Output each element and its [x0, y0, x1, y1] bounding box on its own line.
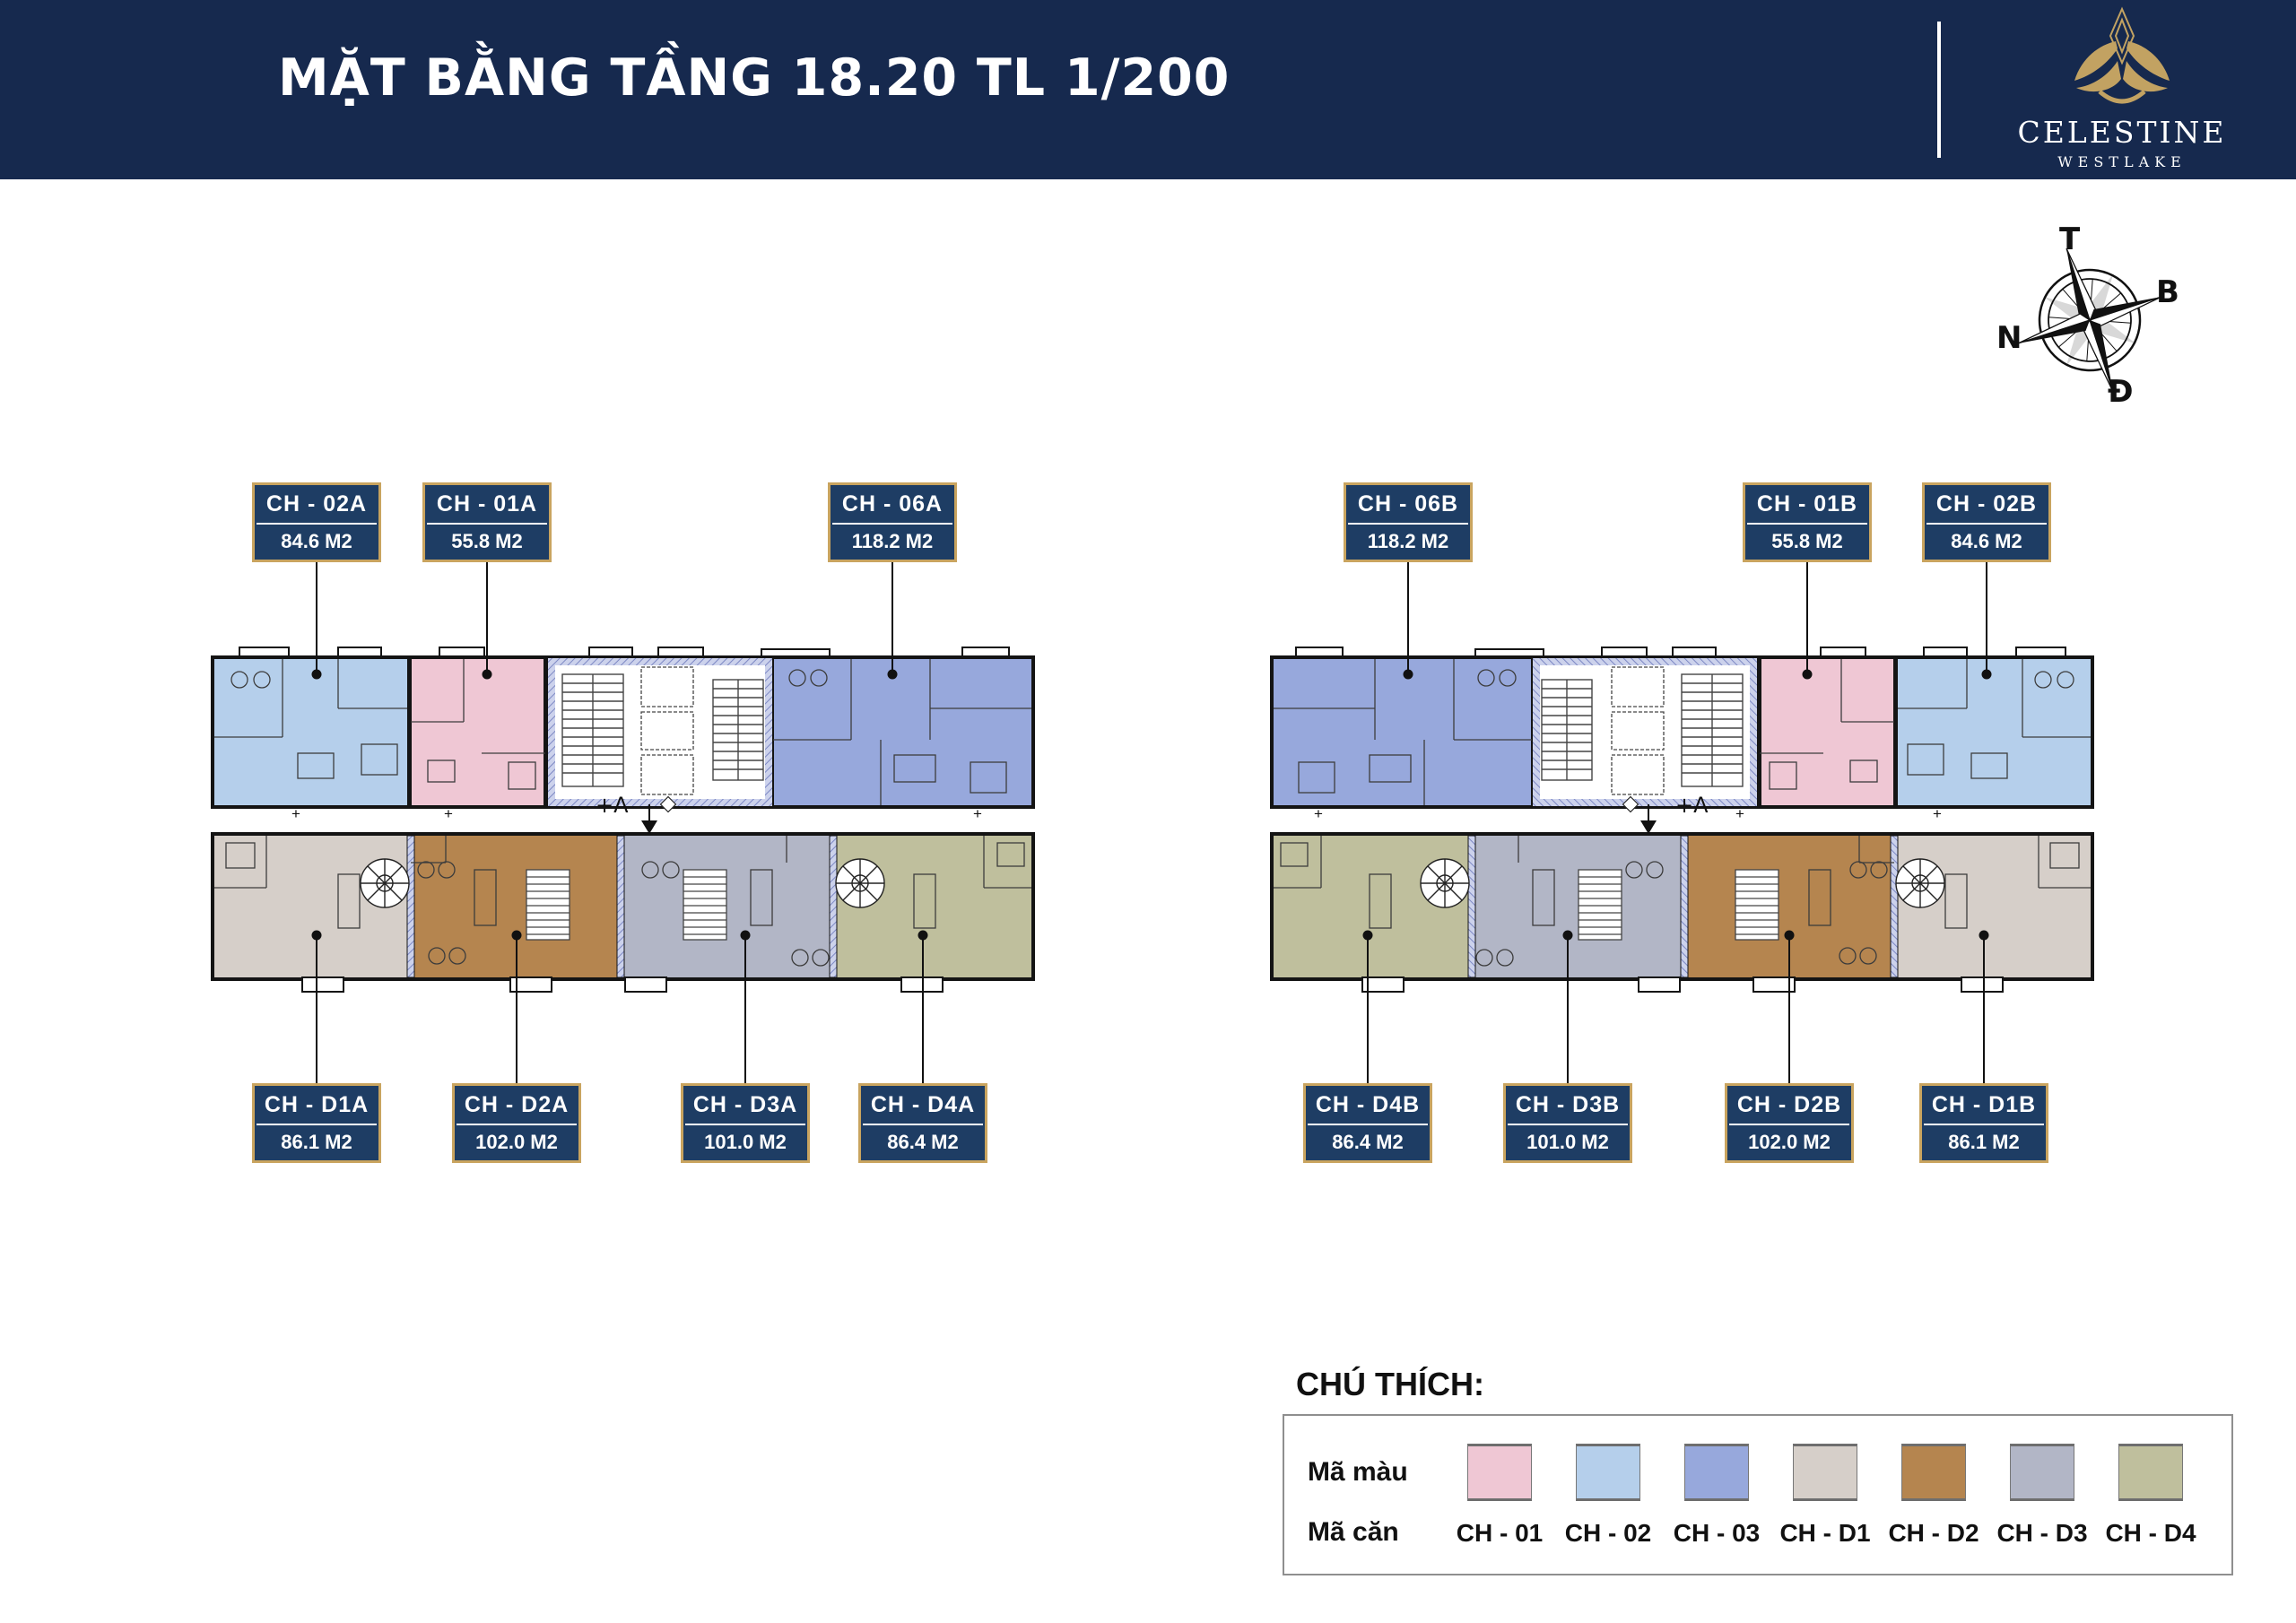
- unit-code: CH - D4A: [861, 1086, 985, 1124]
- unit-label-ch-d1a: CH - D1A 86.1 M2: [252, 1083, 381, 1163]
- legend-code: CH - 01: [1448, 1519, 1552, 1548]
- unit-code: CH - D2A: [455, 1086, 578, 1124]
- unit-label-ch-d4a: CH - D4A 86.4 M2: [858, 1083, 987, 1163]
- leader-line: [486, 547, 488, 674]
- unit-area: 84.6 M2: [1925, 525, 2048, 560]
- legend-box: [1283, 1414, 2233, 1575]
- leader-dot: [888, 670, 898, 680]
- leader-line: [1806, 547, 1808, 674]
- leader-line: [316, 935, 317, 1083]
- plus-mark: +: [973, 805, 982, 823]
- plus-mark: +: [1933, 805, 1942, 823]
- legend-swatch-ch03: [1684, 1444, 1749, 1501]
- unit-area: 118.2 M2: [831, 525, 954, 560]
- legend-code: CH - D2: [1882, 1519, 1986, 1548]
- leader-dot: [312, 670, 322, 680]
- legend-swatch-chd4: [2118, 1444, 2183, 1501]
- unit-code: CH - 01B: [1745, 485, 1869, 523]
- unit-code: CH - D4B: [1306, 1086, 1430, 1124]
- unit-area: 101.0 M2: [683, 1125, 807, 1160]
- legend-code: CH - D4: [2099, 1519, 2203, 1548]
- leader-line: [1407, 547, 1409, 674]
- leader-dot: [1404, 670, 1413, 680]
- unit-code: CH - D1A: [255, 1086, 378, 1124]
- unit-area: 86.4 M2: [861, 1125, 985, 1160]
- section-arrow-a: [641, 820, 657, 834]
- legend-color-row-label: Mã màu: [1308, 1457, 1408, 1488]
- unit-label-ch-d2b: CH - D2B 102.0 M2: [1725, 1083, 1854, 1163]
- leader-line: [922, 935, 924, 1083]
- unit-area: 86.4 M2: [1306, 1125, 1430, 1160]
- unit-label-ch-d2a: CH - D2A 102.0 M2: [452, 1083, 581, 1163]
- legend-swatch-ch01: [1467, 1444, 1532, 1501]
- unit-area: 55.8 M2: [425, 525, 549, 560]
- unit-label-ch-01a: CH - 01A 55.8 M2: [422, 482, 552, 562]
- plus-mark: +: [1314, 805, 1323, 823]
- leader-dot: [1803, 670, 1813, 680]
- unit-area: 86.1 M2: [255, 1125, 378, 1160]
- leader-dot: [1363, 931, 1373, 941]
- section-arrow-b: [1640, 820, 1657, 834]
- unit-area: 55.8 M2: [1745, 525, 1869, 560]
- unit-area: 84.6 M2: [255, 525, 378, 560]
- leader-line: [1567, 935, 1569, 1083]
- leader-line: [891, 547, 893, 674]
- leader-dot: [483, 670, 492, 680]
- legend-code: CH - 02: [1556, 1519, 1660, 1548]
- leader-dot: [918, 931, 928, 941]
- legend-code: CH - 03: [1665, 1519, 1769, 1548]
- legend-code: CH - D3: [1990, 1519, 2094, 1548]
- unit-area: 102.0 M2: [1727, 1125, 1851, 1160]
- leader-line: [316, 547, 317, 674]
- unit-code: CH - D3A: [683, 1086, 807, 1124]
- legend-swatch-ch02: [1576, 1444, 1640, 1501]
- unit-code: CH - 02B: [1925, 485, 2048, 523]
- section-line-b: [1648, 804, 1649, 820]
- plus-mark: +: [444, 805, 453, 823]
- legend-swatch-chd2: [1901, 1444, 1966, 1501]
- plus-mark: +: [291, 805, 300, 823]
- leader-line: [1788, 935, 1790, 1083]
- leader-dot: [1979, 931, 1989, 941]
- legend-swatch-chd3: [2010, 1444, 2074, 1501]
- unit-area: 101.0 M2: [1506, 1125, 1630, 1160]
- legend-heading: CHÚ THÍCH:: [1296, 1366, 1484, 1403]
- unit-code: CH - 06A: [831, 485, 954, 523]
- unit-area: 118.2 M2: [1346, 525, 1470, 560]
- leader-line: [1983, 935, 1985, 1083]
- unit-label-ch-02b: CH - 02B 84.6 M2: [1922, 482, 2051, 562]
- unit-code: CH - D3B: [1506, 1086, 1630, 1124]
- leader-dot: [1785, 931, 1795, 941]
- floor-plan-page: MẶT BẰNG TẦNG 18.20 TL 1/200 CELESTINE W…: [0, 0, 2296, 1623]
- level-mark-b: +A: [1675, 793, 1709, 818]
- unit-label-ch-06a: CH - 06A 118.2 M2: [828, 482, 957, 562]
- unit-code: CH - D1B: [1922, 1086, 2046, 1124]
- leader-line: [1986, 547, 1987, 674]
- unit-code: CH - 02A: [255, 485, 378, 523]
- unit-area: 86.1 M2: [1922, 1125, 2046, 1160]
- leader-line: [744, 935, 746, 1083]
- unit-area: 102.0 M2: [455, 1125, 578, 1160]
- unit-label-ch-d3a: CH - D3A 101.0 M2: [681, 1083, 810, 1163]
- leader-line: [1367, 935, 1369, 1083]
- unit-code: CH - 01A: [425, 485, 549, 523]
- unit-label-ch-d4b: CH - D4B 86.4 M2: [1303, 1083, 1432, 1163]
- unit-label-ch-01b: CH - 01B 55.8 M2: [1743, 482, 1872, 562]
- unit-code: CH - D2B: [1727, 1086, 1851, 1124]
- legend-swatch-chd1: [1793, 1444, 1857, 1501]
- leader-line: [516, 935, 517, 1083]
- level-mark-a: +A: [596, 793, 629, 818]
- leader-dot: [1982, 670, 1992, 680]
- legend-unit-row-label: Mã căn: [1308, 1517, 1399, 1548]
- unit-label-ch-02a: CH - 02A 84.6 M2: [252, 482, 381, 562]
- floor-plan-drawing: [0, 0, 2296, 1623]
- unit-label-ch-d3b: CH - D3B 101.0 M2: [1503, 1083, 1632, 1163]
- unit-label-ch-d1b: CH - D1B 86.1 M2: [1919, 1083, 2048, 1163]
- leader-dot: [312, 931, 322, 941]
- leader-dot: [512, 931, 522, 941]
- unit-code: CH - 06B: [1346, 485, 1470, 523]
- legend-code: CH - D1: [1773, 1519, 1877, 1548]
- leader-dot: [741, 931, 751, 941]
- unit-label-ch-06b: CH - 06B 118.2 M2: [1344, 482, 1473, 562]
- plus-mark: +: [1735, 805, 1744, 823]
- section-line-a: [648, 804, 650, 820]
- leader-dot: [1563, 931, 1573, 941]
